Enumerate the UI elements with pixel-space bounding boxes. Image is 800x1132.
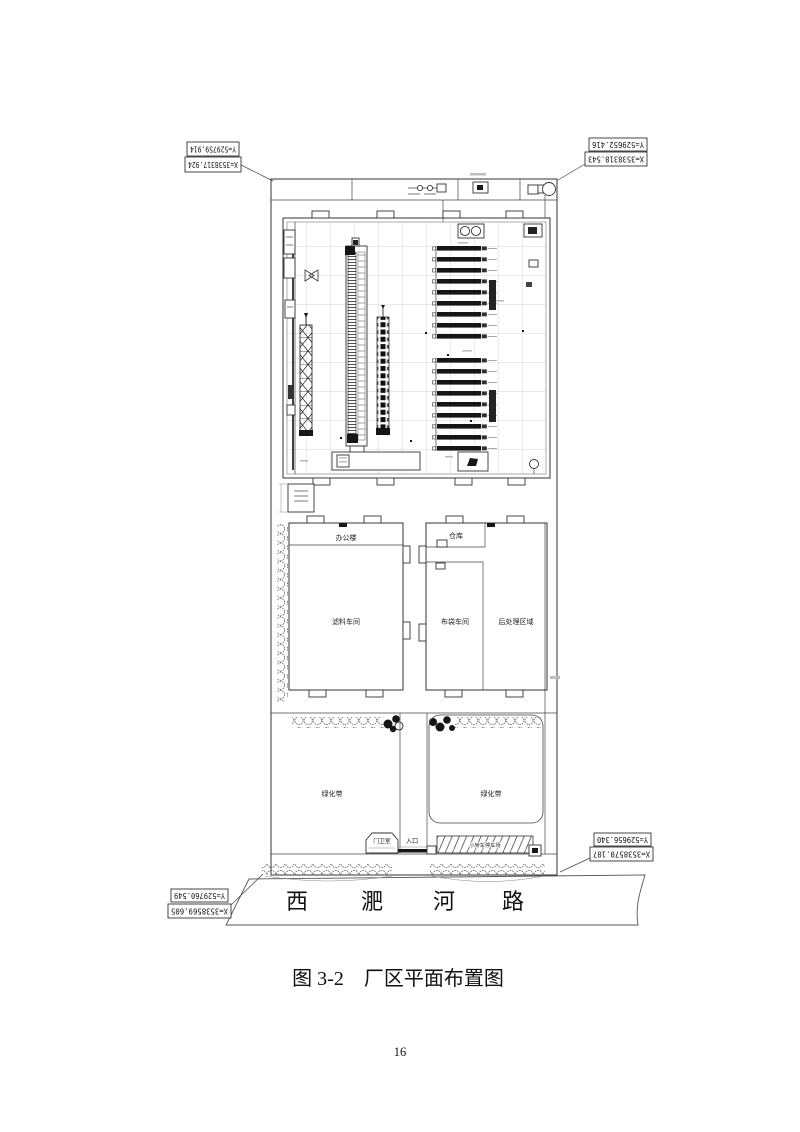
bag-workshop-label: 布袋车间 bbox=[441, 617, 469, 626]
parking-label: 小轿车停车场 bbox=[469, 841, 500, 849]
column-grid bbox=[287, 222, 546, 474]
greenbelts: 绿化带 绿化带 bbox=[322, 715, 544, 823]
tree-row-bottom-left bbox=[262, 864, 392, 875]
coord-bl-y: Y=529760.549 bbox=[174, 891, 225, 900]
building-filter-workshop: 办公楼 滤料车间 bbox=[289, 516, 410, 697]
main-workshop bbox=[283, 211, 550, 485]
page-number: 16 bbox=[394, 1045, 407, 1059]
figure-caption: 图 3-2 厂区平面布置图 bbox=[292, 967, 504, 990]
greenbelt-right-label: 绿化带 bbox=[481, 789, 502, 798]
post-processing-label: 后处理区域 bbox=[499, 617, 534, 626]
coord-tr-x: X=3538318.543 bbox=[588, 155, 644, 164]
road: 西 淝 河 路 bbox=[226, 875, 645, 925]
entrance-area: 门卫室 入口 小轿车停车场 bbox=[366, 833, 541, 856]
road-char: 淝 bbox=[361, 889, 383, 914]
road-char: 西 bbox=[286, 889, 308, 914]
coord-bottom-right: Y=529656.340 X=3538570.107 bbox=[560, 833, 653, 872]
coord-tr-y: Y=529652.416 bbox=[592, 140, 644, 149]
fence-devices bbox=[408, 173, 556, 222]
road-char: 路 bbox=[502, 889, 524, 914]
office-building-label: 办公楼 bbox=[336, 533, 357, 542]
coord-bl-x: X=3538569.605 bbox=[171, 907, 228, 916]
segmented-elevator bbox=[376, 305, 390, 435]
entrance-pavement bbox=[398, 849, 428, 853]
filter-workshop-label: 滤料车间 bbox=[332, 617, 360, 626]
existing-tree-cluster bbox=[384, 715, 456, 732]
coord-top-right: Y=529652.416 X=3538318.543 bbox=[558, 138, 647, 180]
tree-row-bottom-right bbox=[430, 864, 545, 875]
coord-tl-x: X=3538317.924 bbox=[188, 160, 238, 169]
braced-tower bbox=[299, 313, 313, 436]
document-page: 西 淝 河 路 bbox=[0, 0, 800, 1132]
buildings: 办公楼 滤料车间 仓库 布袋车间 后处理区域 bbox=[289, 516, 547, 697]
road-char: 河 bbox=[433, 889, 455, 914]
coord-br-y: Y=529656.340 bbox=[597, 835, 648, 844]
tree-row-greenbelt-right bbox=[455, 717, 541, 728]
coord-br-x: X=3538570.107 bbox=[593, 850, 650, 859]
warehouse-label: 仓库 bbox=[449, 531, 463, 540]
tree-column-left bbox=[277, 524, 288, 702]
building-bag-workshop: 仓库 布袋车间 后处理区域 bbox=[419, 516, 547, 697]
site-plan-figure: 西 淝 河 路 bbox=[0, 0, 800, 1132]
utility-box bbox=[279, 484, 314, 512]
coord-top-left: Y=529759.914 X=3538317.924 bbox=[185, 142, 273, 181]
long-conveyor bbox=[345, 238, 367, 464]
guard-room-label: 门卫室 bbox=[373, 837, 391, 845]
entrance-label: 入口 bbox=[406, 838, 418, 845]
greenbelt-left-label: 绿化带 bbox=[322, 789, 343, 798]
tree-row-greenbelt-left bbox=[292, 717, 384, 728]
coord-tl-y: Y=529759.914 bbox=[190, 145, 236, 154]
